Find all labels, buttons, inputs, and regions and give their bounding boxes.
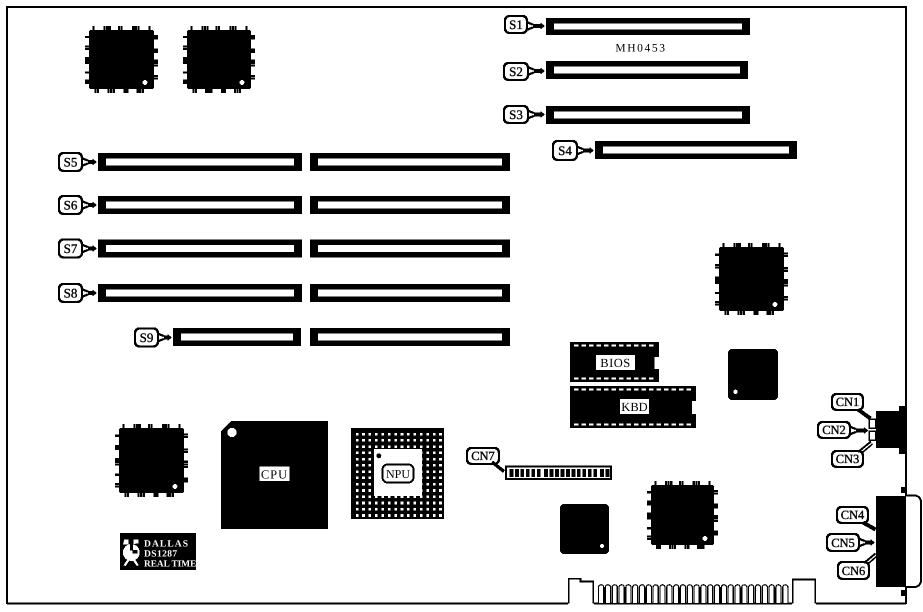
svg-text:REAL TIME: REAL TIME (144, 560, 196, 570)
svg-text:S9: S9 (140, 330, 154, 345)
svg-text:S5: S5 (64, 154, 78, 169)
svg-text:CN1: CN1 (836, 395, 860, 409)
svg-text:NPU: NPU (386, 467, 410, 481)
svg-text:CN5: CN5 (831, 536, 855, 550)
svg-text:CN7: CN7 (471, 449, 495, 463)
svg-text:CN4: CN4 (841, 508, 865, 522)
svg-text:CN6: CN6 (842, 564, 866, 578)
svg-text:S2: S2 (509, 64, 523, 79)
svg-text:S6: S6 (64, 197, 78, 212)
svg-text:KBD: KBD (621, 400, 647, 414)
svg-text:S7: S7 (64, 241, 78, 256)
svg-text:BIOS: BIOS (600, 356, 630, 370)
svg-text:S1: S1 (509, 17, 523, 32)
svg-text:MH0453: MH0453 (615, 43, 666, 55)
svg-text:CN3: CN3 (836, 452, 860, 466)
svg-text:CPU: CPU (261, 468, 288, 482)
svg-text:DS1287: DS1287 (144, 550, 178, 560)
svg-text:CN2: CN2 (822, 423, 846, 437)
svg-text:DALLAS: DALLAS (144, 540, 189, 550)
svg-text:S8: S8 (64, 285, 78, 300)
svg-text:S3: S3 (509, 107, 523, 122)
svg-text:S4: S4 (558, 143, 572, 158)
